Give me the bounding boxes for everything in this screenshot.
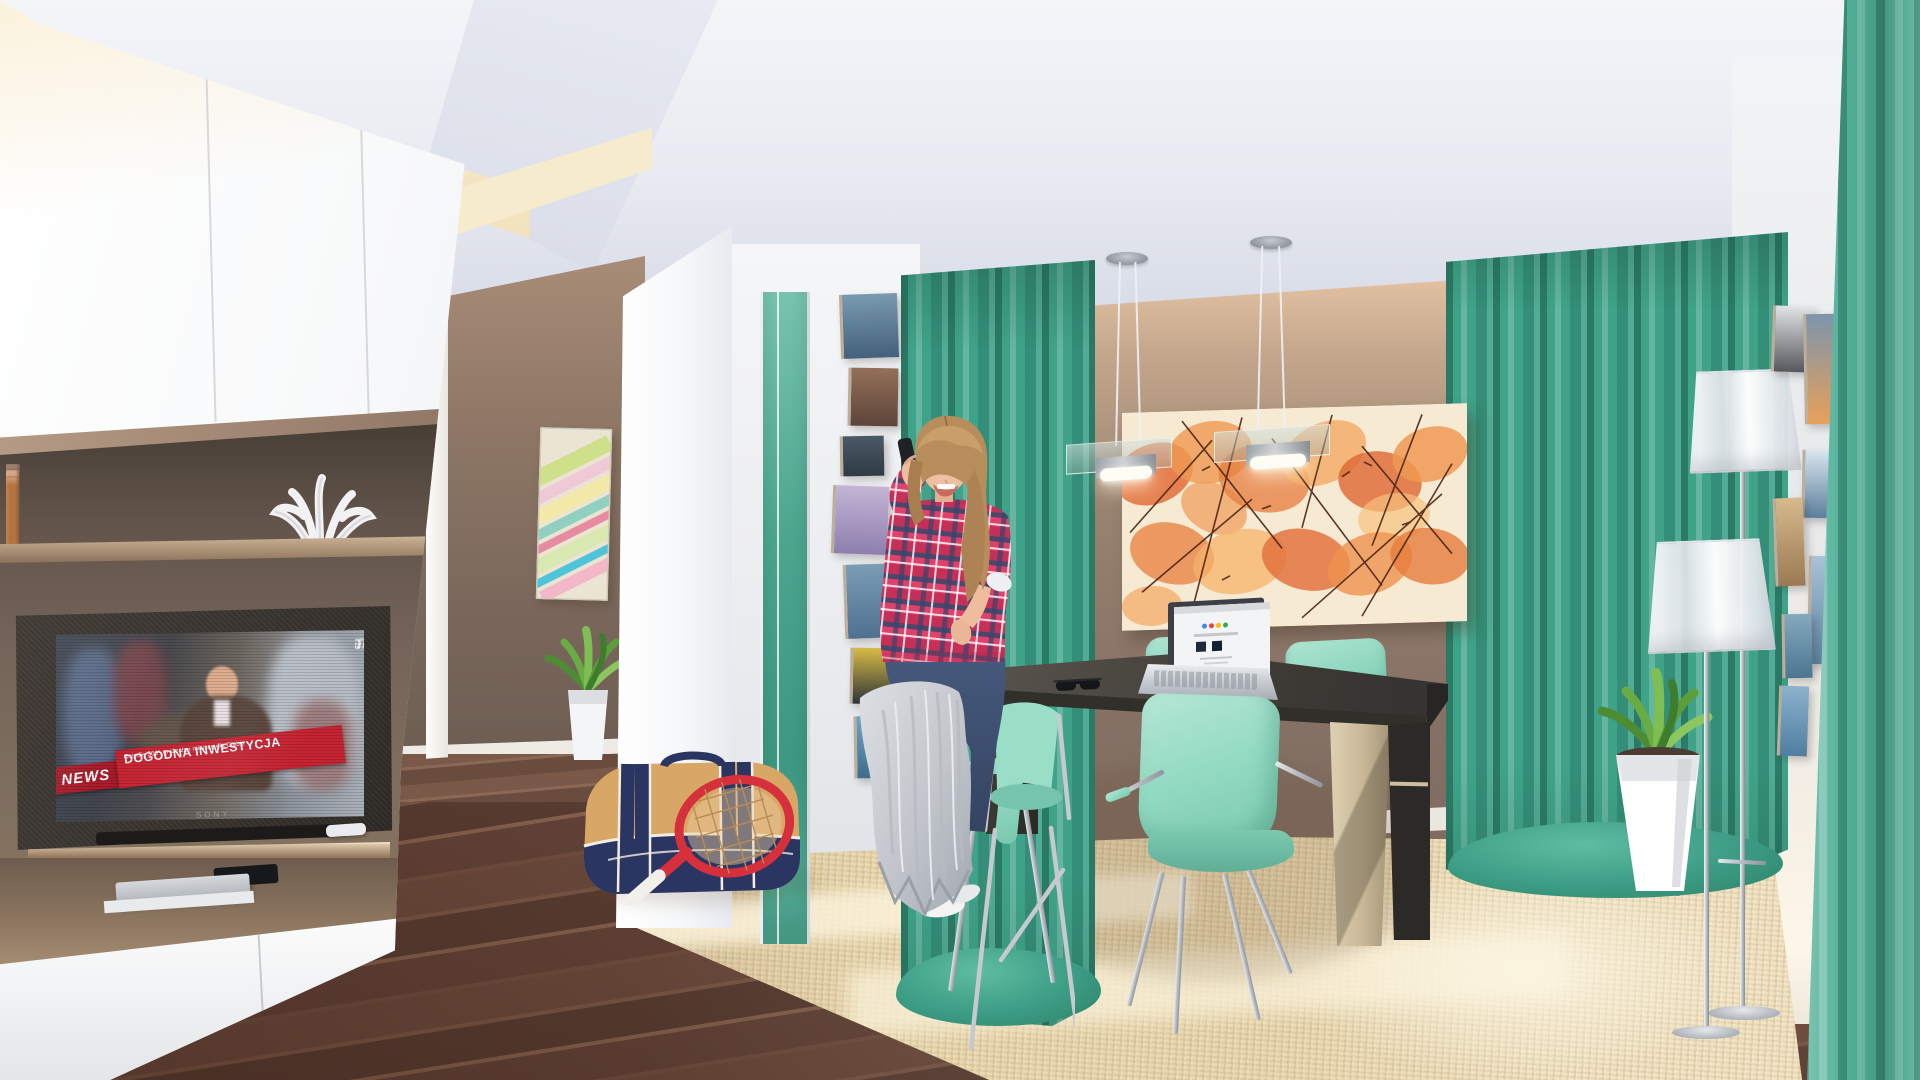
- table-leg: [1388, 722, 1430, 940]
- logo-dot: [1216, 623, 1221, 628]
- woman-on-phone: [845, 400, 1075, 1080]
- photo-frame: [1772, 498, 1805, 587]
- tv-screen: uniTV NEWS DOGODNA INWESTYCJA Osiedle 36…: [56, 630, 364, 822]
- tv-brand-label: SONY: [196, 809, 231, 819]
- dining-chair-front: [1115, 690, 1325, 1050]
- chair-seat: [1148, 830, 1294, 872]
- thumbnail: [1196, 642, 1206, 653]
- book: [6, 476, 19, 554]
- ceiling-mount: [1250, 236, 1292, 249]
- sports-bag: [568, 750, 813, 905]
- browser-bar: [1174, 602, 1270, 614]
- screen-glare: [56, 630, 364, 822]
- bookshelf: [6, 452, 258, 554]
- abstract-painting-hallway: [536, 427, 612, 601]
- lamp-base: [1672, 1026, 1740, 1039]
- chair-leg: [1173, 876, 1186, 1034]
- logo-dot: [1223, 622, 1228, 627]
- thumbnail: [1212, 641, 1222, 652]
- table-leg-champagne: [1330, 722, 1390, 946]
- table-leg-inlay: [1390, 782, 1428, 787]
- logo-dot: [1209, 623, 1214, 628]
- photo-frame: [839, 293, 899, 359]
- chair-armrest: [1275, 761, 1324, 788]
- chair-leg: [1222, 873, 1261, 1020]
- search-line: [1194, 632, 1238, 637]
- ceiling-mount: [1106, 252, 1148, 265]
- text-line: [1204, 661, 1228, 664]
- lamp-shade: [1644, 538, 1776, 654]
- chair-leg: [1126, 871, 1164, 1006]
- logo-dot: [1202, 623, 1207, 628]
- sunglasses-lens: [1080, 680, 1100, 690]
- photo-frame: [1781, 614, 1812, 679]
- text-line: [1200, 656, 1232, 660]
- chair-leg: [1246, 869, 1293, 975]
- lamp-pole: [1704, 642, 1709, 1030]
- photo-frame: [1777, 685, 1809, 756]
- living-room-render: uniTV NEWS DOGODNA INWESTYCJA Osiedle 36…: [0, 0, 1920, 1080]
